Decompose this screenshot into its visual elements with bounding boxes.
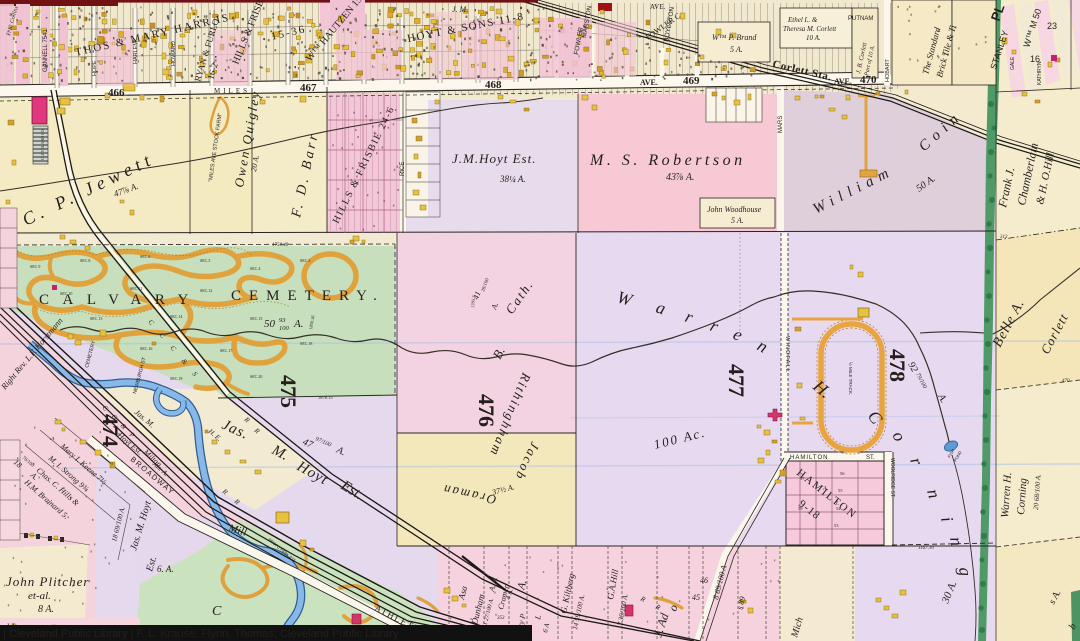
svg-text:RICE: RICE <box>400 162 406 176</box>
svg-text:466: 466 <box>108 87 125 99</box>
svg-text:6. A.: 6. A. <box>157 564 174 574</box>
svg-text:SEC.15: SEC.15 <box>250 316 262 321</box>
svg-text:23: 23 <box>1047 21 1057 31</box>
svg-text:SEC.16: SEC.16 <box>140 346 152 351</box>
svg-text:SEC.19: SEC.19 <box>170 376 182 381</box>
svg-text:5 A.: 5 A. <box>731 216 744 225</box>
svg-text:J. M.: J. M. <box>452 5 468 14</box>
svg-text:8 A.: 8 A. <box>38 604 54 615</box>
svg-text:53: 53 <box>834 523 839 528</box>
svg-text:MILES: MILES <box>214 87 250 95</box>
svg-text:SEC.10: SEC.10 <box>60 291 72 296</box>
svg-text:57: 57 <box>800 476 805 481</box>
svg-text:5 A.: 5 A. <box>730 45 743 54</box>
svg-text:HOBART: HOBART <box>885 59 891 82</box>
svg-text:Ethel L. &: Ethel L. & <box>787 16 818 24</box>
svg-text:93: 93 <box>279 317 286 324</box>
svg-text:45: 45 <box>692 593 700 602</box>
svg-text:AVE.: AVE. <box>834 77 852 86</box>
svg-text:475: 475 <box>276 375 301 408</box>
svg-text:HOWARD: HOWARD <box>171 41 177 66</box>
svg-text:SEC.3: SEC.3 <box>300 258 310 263</box>
svg-text:SEC.12: SEC.12 <box>200 288 212 293</box>
svg-text:WOOLRIDGE ST.: WOOLRIDGE ST. <box>889 458 895 498</box>
svg-text:10 A.: 10 A. <box>806 34 821 42</box>
svg-text:HOPE: HOPE <box>92 60 98 76</box>
svg-text:W™ P. Brand: W™ P. Brand <box>712 33 757 42</box>
svg-text:SEC.13: SEC.13 <box>90 316 102 321</box>
svg-text:CEMETERY.: CEMETERY. <box>231 288 385 304</box>
svg-text:38¼ A.: 38¼ A. <box>499 174 526 184</box>
svg-text:SEC.8: SEC.8 <box>80 258 90 263</box>
svg-text:SEC.18: SEC.18 <box>300 341 312 346</box>
svg-text:GANNELL 7541: GANNELL 7541 <box>43 29 49 72</box>
svg-text:A.: A. <box>822 486 828 492</box>
svg-text:SEC.11: SEC.11 <box>130 286 142 291</box>
svg-text:1167.10: 1167.10 <box>918 546 934 551</box>
svg-text:AVE.: AVE. <box>640 78 658 87</box>
svg-text:56: 56 <box>840 471 845 476</box>
svg-text:55: 55 <box>838 488 843 493</box>
svg-text:C: C <box>212 604 222 619</box>
svg-text:SEC.14: SEC.14 <box>170 314 182 319</box>
svg-text:KATHRYN: KATHRYN <box>1037 61 1043 85</box>
svg-text:ST.: ST. <box>866 455 875 461</box>
svg-text:A.: A. <box>293 318 303 330</box>
svg-text:J.M.Hoyt Est.: J.M.Hoyt Est. <box>452 151 536 166</box>
svg-text:50: 50 <box>264 318 276 330</box>
svg-text:SEC.5: SEC.5 <box>200 258 210 263</box>
svg-text:46: 46 <box>700 576 708 585</box>
svg-text:43⅞ A.: 43⅞ A. <box>666 172 694 183</box>
svg-text:474: 474 <box>98 414 123 447</box>
svg-text:SEC.6: SEC.6 <box>140 254 150 259</box>
svg-text:SEC.20: SEC.20 <box>250 374 262 379</box>
svg-text:SEC.4: SEC.4 <box>250 266 260 271</box>
svg-text:AVE.: AVE. <box>650 3 665 11</box>
svg-text:CLEVELAND CO: CLEVELAND CO <box>40 129 45 160</box>
svg-text:John Woodhouse: John Woodhouse <box>707 205 762 214</box>
svg-text:GALE: GALE <box>1010 56 1016 70</box>
svg-text:313: 313 <box>1000 235 1008 240</box>
svg-text:1878.15: 1878.15 <box>318 395 333 400</box>
svg-text:470: 470 <box>1062 379 1070 384</box>
svg-text:467: 467 <box>300 82 317 94</box>
svg-text:PUTNAM: PUTNAM <box>848 16 873 22</box>
svg-text:M. S. Robertson: M. S. Robertson <box>589 152 746 169</box>
svg-text:HARLEM: HARLEM <box>133 41 139 64</box>
svg-text:1750.48: 1750.48 <box>272 243 289 248</box>
svg-text:John Plitcher: John Plitcher <box>6 574 89 589</box>
svg-text:| Cleveland Public Library | F: | Cleveland Public Library | F. L. Kraus… <box>3 628 399 640</box>
svg-text:½ MILE TRACK.: ½ MILE TRACK. <box>848 362 854 395</box>
svg-text:476: 476 <box>474 394 499 427</box>
svg-text:100: 100 <box>279 325 290 332</box>
svg-text:HAMILTON: HAMILTON <box>790 455 828 461</box>
svg-text:et-al.: et-al. <box>28 590 51 602</box>
svg-text:59: 59 <box>798 506 803 511</box>
svg-text:54: 54 <box>836 506 841 511</box>
svg-text:468: 468 <box>485 79 502 91</box>
svg-text:SEC.9: SEC.9 <box>30 264 40 269</box>
svg-text:469: 469 <box>683 75 700 87</box>
svg-text:MARS: MARS <box>778 116 784 133</box>
svg-text:353: 353 <box>497 616 505 621</box>
svg-text:Theresa M. Corlett: Theresa M. Corlett <box>783 25 837 33</box>
svg-text:477: 477 <box>724 364 749 397</box>
svg-text:WINDFALL: WINDFALL <box>784 336 790 373</box>
svg-text:SEC.17: SEC.17 <box>220 348 232 353</box>
